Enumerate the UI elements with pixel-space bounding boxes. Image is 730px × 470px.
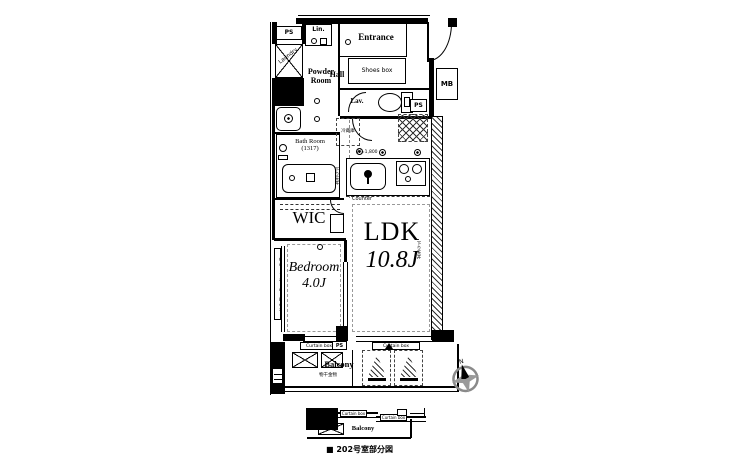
compass-north-letter: N (458, 358, 464, 366)
sliding-door-panel-1 (343, 262, 344, 330)
bathtub-drain-icon (306, 173, 315, 182)
bathroom-label: Bath Room (1317) (290, 138, 330, 152)
partial-step-line-h (410, 413, 425, 414)
wall-left-block (272, 78, 304, 106)
partial-step-line-v (424, 408, 425, 418)
partial-plan-caption: ■ 202号室部分図 (326, 446, 436, 455)
entrance-door-swing-arc (429, 23, 452, 61)
dropped-ceiling-label-1: 下り天井 (331, 160, 338, 192)
linen-label: Lin. (306, 25, 331, 35)
pipe-space-box-top: PS (276, 26, 302, 40)
ldk-size-label: 10.8J (350, 248, 434, 274)
downlight-symbol-bedroom (317, 244, 323, 250)
balcony-edge-outer (284, 386, 458, 388)
partial-curtain-box-label-1: Curtain box (341, 411, 366, 417)
pipe-space-label-right: PS (411, 100, 426, 111)
counter-label: Counter (348, 197, 376, 202)
balcony-edge-inner (284, 391, 458, 392)
wic-door-swing-arc (330, 200, 344, 214)
entrance-step-line (340, 56, 406, 57)
partial-right-edge (410, 419, 412, 438)
stove-burner-icon-2 (412, 164, 422, 174)
wall-lav-top (340, 88, 432, 90)
pipe-space-label-top: PS (277, 27, 301, 39)
partial-slab-box (318, 423, 344, 435)
wall-bottom-center (336, 326, 348, 341)
wic-label: WIC (286, 209, 332, 227)
ldk-label: LDK (350, 218, 434, 246)
bedroom-label: Bedroom (283, 260, 345, 275)
ac-unit-space-1 (362, 350, 391, 386)
left-outline (270, 22, 271, 395)
bath-counter-icon (278, 155, 288, 160)
balcony-slab-box-1 (292, 352, 318, 368)
partial-curtain-box-1: Curtain box (340, 410, 367, 417)
downlight-symbol-hall (314, 116, 320, 122)
partial-wall-seg-1b (338, 417, 378, 418)
meter-box: MB (436, 68, 458, 100)
pipe-space-label-bottom: PS (333, 342, 346, 350)
ac-unit-space-2 (394, 350, 423, 386)
fixture-symbol-square (320, 38, 327, 45)
bathtub-faucet-icon (289, 175, 295, 181)
north-tick-triangle (385, 343, 393, 349)
toilet-bowl-icon (378, 93, 402, 112)
bedroom-curtain-box-label: Curtain box (275, 249, 282, 321)
hall-label: Hall (322, 71, 352, 80)
bedroom-window-sill-1 (303, 336, 339, 337)
fixture-symbol-circle (311, 38, 317, 44)
shoes-box-label: Shoes box (349, 59, 405, 83)
duct-space-crosshatch (398, 114, 428, 142)
downlight-symbol-powder (314, 98, 320, 104)
partial-balcony-edge (307, 437, 411, 439)
bedroom-size-label: 4.0J (283, 276, 345, 291)
parapet-line (298, 15, 430, 16)
downlight-symbol-entrance (345, 39, 351, 45)
bedroom-curtain-box: Curtain box (274, 248, 281, 320)
wall-powder-hall (338, 22, 340, 116)
meter-box-label: MB (437, 69, 457, 99)
shower-fixture-icon (279, 144, 287, 152)
downlight-symbol-kitchen-1 (356, 148, 363, 155)
wic-pillar (330, 214, 344, 233)
floor-plan-canvas: PS Lin. Laundry Entrance Shoes box Powde… (0, 0, 730, 470)
stove-burner-icon-1 (399, 164, 409, 174)
wall-right-upper (429, 58, 434, 116)
wall-bottom-left (283, 334, 305, 341)
pipe-space-box-right: PS (410, 99, 427, 112)
wall-bedroom-ldk-top (344, 240, 347, 262)
ldk-window-sill-1 (356, 336, 434, 337)
shoes-box: Shoes box (348, 58, 406, 84)
curtain-box-ldk: Curtain box (372, 342, 420, 350)
partial-wall-seg-2b (376, 421, 426, 422)
wall-left-mid (272, 106, 275, 240)
entrance-label: Entrance (344, 33, 408, 43)
wall-bottom-right (432, 330, 454, 342)
lav-label: Lav. (344, 98, 370, 106)
sliding-door-panel-2 (347, 262, 348, 330)
partial-balcony-label: Balcony (346, 425, 380, 432)
ac-unit-icon-2 (398, 355, 420, 377)
pipe-space-box-bottom: PS (332, 341, 347, 350)
curtain-box-ldk-label: Curtain box (373, 343, 419, 350)
downlight-symbol-kitchen-2 (379, 149, 386, 156)
linen-closet: Lin. (305, 24, 332, 46)
wall-wic-bedroom (274, 238, 346, 241)
balcony-hatch-icon (272, 368, 283, 384)
ac-unit-icon-1 (366, 355, 388, 377)
washbasin-faucet-icon (284, 114, 293, 123)
partial-vent-box (397, 409, 407, 416)
stove-burner-icon-3 (405, 176, 411, 182)
balcony-label: Balcony (316, 360, 362, 369)
kitchen-faucet-stem (367, 176, 369, 184)
compass-icon: N (442, 354, 488, 400)
downlight-symbol-kitchen-3 (414, 149, 421, 156)
laundry-pole-label: 物干金物 (313, 374, 343, 379)
